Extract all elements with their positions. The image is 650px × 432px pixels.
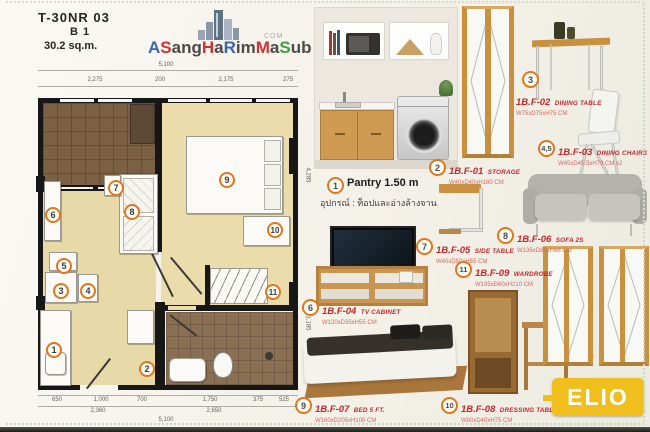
plan-marker-11: 11 (265, 284, 281, 300)
plan-pillow (264, 140, 281, 162)
item-name: SOFA 2S (556, 237, 584, 244)
pantry-note: อุปกรณ์ : ท็อปและอ่างล้างจาน (320, 196, 437, 210)
plan-pillow (264, 164, 281, 186)
item-name: TV CABINET (361, 309, 401, 316)
dim-line (38, 406, 298, 407)
window (256, 99, 290, 102)
catalog-label-1bf09: 11 1B.F-09 WARDROBE W135xD60xH210 CM (455, 261, 553, 290)
item-dims: W45xD45.5xH79 CM x2 (558, 161, 647, 169)
item-code: 1B.F-06 (517, 234, 551, 245)
cut-line-top (6, 1, 644, 3)
item-number-badge: 11 (455, 261, 472, 278)
plan-marker-9: 9 (219, 172, 235, 188)
dim-bottom: 1,000 (93, 397, 108, 403)
item-number-badge: 3 (522, 71, 539, 88)
window (60, 99, 94, 102)
photo-edge (0, 427, 650, 432)
catalog-label-1bf04: 6 1B.F-04 TV CABINET W120xD35xH55 CM (302, 299, 401, 328)
item-code: 1B.F-07 (315, 404, 349, 415)
plan-marker-10: 10 (267, 222, 283, 238)
brochure-photo: T-30NR 03 B 1 30.2 sq.m. ASangHaRimMaSub… (0, 0, 650, 432)
balcony-unit (130, 104, 155, 144)
logo-letter: ang (172, 38, 202, 58)
photo-frame-icon (399, 271, 413, 283)
unit-model: T-30NR 03 (38, 10, 110, 25)
dim-bottom2: 2,360 (90, 408, 105, 414)
catalog-label-1bf06: 8 1B.F-06 SOFA 2S W135xD85xH88 CM (497, 227, 584, 256)
dim-line (38, 86, 298, 87)
plan-marker-8: 8 (124, 204, 140, 220)
item-dims: W135xD85xH88 CM (517, 248, 584, 256)
item-name: DINING CHAIRS (597, 150, 648, 157)
wall-center-lower (155, 302, 165, 390)
dim-top-total: 5,100 (158, 62, 173, 68)
unit-area: 30.2 sq.m. (44, 40, 97, 52)
logo-letter: M (256, 38, 270, 58)
plan-marker-2: 2 (139, 361, 155, 377)
plan-basin (265, 352, 273, 360)
logo-letter: a (214, 38, 223, 58)
logo-letter: A (148, 38, 160, 58)
item-number-badge: 7 (416, 238, 433, 255)
item-code: 1B.F-08 (461, 404, 495, 415)
base-cabinet (320, 110, 394, 160)
dressing-cabinet-icon (468, 290, 518, 394)
jar-icon (567, 27, 575, 39)
faucet-icon (343, 92, 346, 102)
storage-wood-bar (485, 9, 491, 154)
pantry-title: Pantry 1.50 m (347, 177, 419, 189)
catalog-label-1bf02: 3 1B.F-02 DINING TABLE W75xD75xH75 CM (516, 71, 602, 119)
item-code: 1B.F-03 (558, 147, 592, 158)
unit-type: B 1 (70, 26, 90, 38)
item-name: DINING TABLE (555, 100, 602, 107)
item-dims: W120xD35xH55 CM (322, 320, 401, 328)
dim-bottom: 375 (253, 397, 263, 403)
item-code: 1B.F-01 (449, 166, 483, 177)
logo-letter: im (236, 38, 256, 58)
dim-line (38, 395, 298, 396)
tv-cabinet-icon (312, 226, 432, 308)
logo-letter: ub (291, 38, 312, 58)
item-code: 1B.F-04 (322, 306, 356, 317)
plan-storage (127, 310, 154, 344)
dim-top: 200 (155, 77, 165, 83)
item-number-badge: 2 (429, 159, 446, 176)
sink-icon (335, 102, 361, 108)
item-dims: W40xD40xH180 CM (449, 180, 520, 188)
wall-bottom-right (118, 385, 298, 390)
plan-marker-5: 5 (56, 258, 72, 274)
pantry-label: 1 Pantry 1.50 m (327, 177, 419, 194)
book-icon (333, 33, 336, 55)
decor-icon (396, 39, 424, 55)
dim-top: 275 (283, 77, 293, 83)
item-number-badge: 4,5 (538, 140, 555, 157)
plan-marker-7: 7 (108, 180, 124, 196)
logo-letter: S (160, 38, 171, 58)
catalog-label-1bf08: 10 1B.F-08 DRESSING TABLE W80xD40xH75 CM (441, 397, 558, 426)
jar-icon (554, 22, 565, 39)
item-name: STORAGE (488, 169, 520, 176)
item-code: 1B.F-05 (436, 245, 470, 256)
dim-bottom: 700 (137, 397, 147, 403)
plan-marker-1: 1 (46, 342, 62, 358)
dim-bottom: 650 (52, 397, 62, 403)
dim-top: 2,275 (87, 77, 102, 83)
website-logo: ASangHaRimMaSub (148, 38, 312, 58)
catalog-label-1bf03: 4,5 1B.F-03 DINING CHAIRS W45xD45.5xH79 … (538, 140, 647, 169)
wall-shelf (389, 22, 449, 60)
plan-marker-6: 6 (45, 207, 61, 223)
item-name: DRESSING TABLE (500, 407, 558, 414)
vase-icon (430, 33, 442, 55)
bed-icon (296, 322, 472, 407)
item-dims: W75xD75xH75 CM (516, 111, 602, 119)
item-number-badge: 1 (327, 177, 344, 194)
catalog-label-1bf07: 9 1B.F-07 BED 5 FT. W160xD205xH100 CM (295, 397, 385, 426)
brochure-page: T-30NR 03 B 1 30.2 sq.m. ASangHaRimMaSub… (0, 0, 650, 427)
pantry-photo (315, 8, 457, 168)
plan-toilet (213, 352, 233, 378)
item-dims: W135xD60xH210 CM (475, 282, 553, 290)
logo-com-suffix: .COM (261, 33, 283, 40)
logo-letter: S (279, 38, 290, 58)
window (210, 99, 252, 102)
wardrobe-icon (543, 246, 650, 370)
side-table-icon (437, 182, 491, 236)
logo-letter: H (202, 38, 214, 58)
washing-machine-icon (397, 96, 449, 160)
plan-wardrobe (210, 268, 268, 304)
microwave-icon (346, 33, 380, 55)
item-code: 1B.F-09 (475, 268, 509, 279)
wall-pillar (289, 138, 298, 174)
window (98, 99, 132, 102)
item-code: 1B.F-02 (516, 97, 550, 108)
bathroom-door-gap (168, 306, 196, 310)
dim-bottom: 525 (279, 397, 289, 403)
dim-top: 2,175 (218, 77, 233, 83)
dim-bottom2: 2,650 (206, 408, 221, 414)
dim-bottom: 1,750 (202, 397, 217, 403)
logo-letter: R (224, 38, 236, 58)
elio-logo: ELIO (552, 378, 644, 416)
item-number-badge: 10 (441, 397, 458, 414)
item-number-badge: 9 (295, 397, 312, 414)
dim-line (38, 70, 298, 71)
tv-icon (330, 226, 416, 270)
cut-line-right (643, 4, 645, 422)
catalog-label-1bf01: 2 1B.F-01 STORAGE W40xD40xH180 CM (429, 159, 520, 188)
item-name: BED 5 FT. (354, 407, 385, 414)
item-name: WARDROBE (514, 271, 553, 278)
cut-line-bottom (6, 423, 644, 425)
wall-shelf (323, 22, 385, 60)
plan-marker-3: 3 (53, 283, 69, 299)
wall-pillar (36, 296, 45, 310)
storage-cabinet-icon (462, 6, 514, 158)
logo-letter: a (270, 38, 279, 58)
plan-pillow (264, 188, 281, 210)
book-icon (329, 31, 332, 55)
plan-sofa-cushion (123, 216, 154, 251)
dim-right: 4,285 (305, 167, 311, 182)
window (168, 99, 206, 102)
elio-logo-text: ELIO (567, 384, 629, 411)
item-number-badge: 8 (497, 227, 514, 244)
book-icon (337, 30, 340, 55)
plan-marker-4: 4 (80, 283, 96, 299)
plan-bathtub (169, 358, 206, 382)
pillow-icon (422, 324, 453, 340)
item-number-badge: 6 (302, 299, 319, 316)
plant-icon (439, 80, 453, 96)
